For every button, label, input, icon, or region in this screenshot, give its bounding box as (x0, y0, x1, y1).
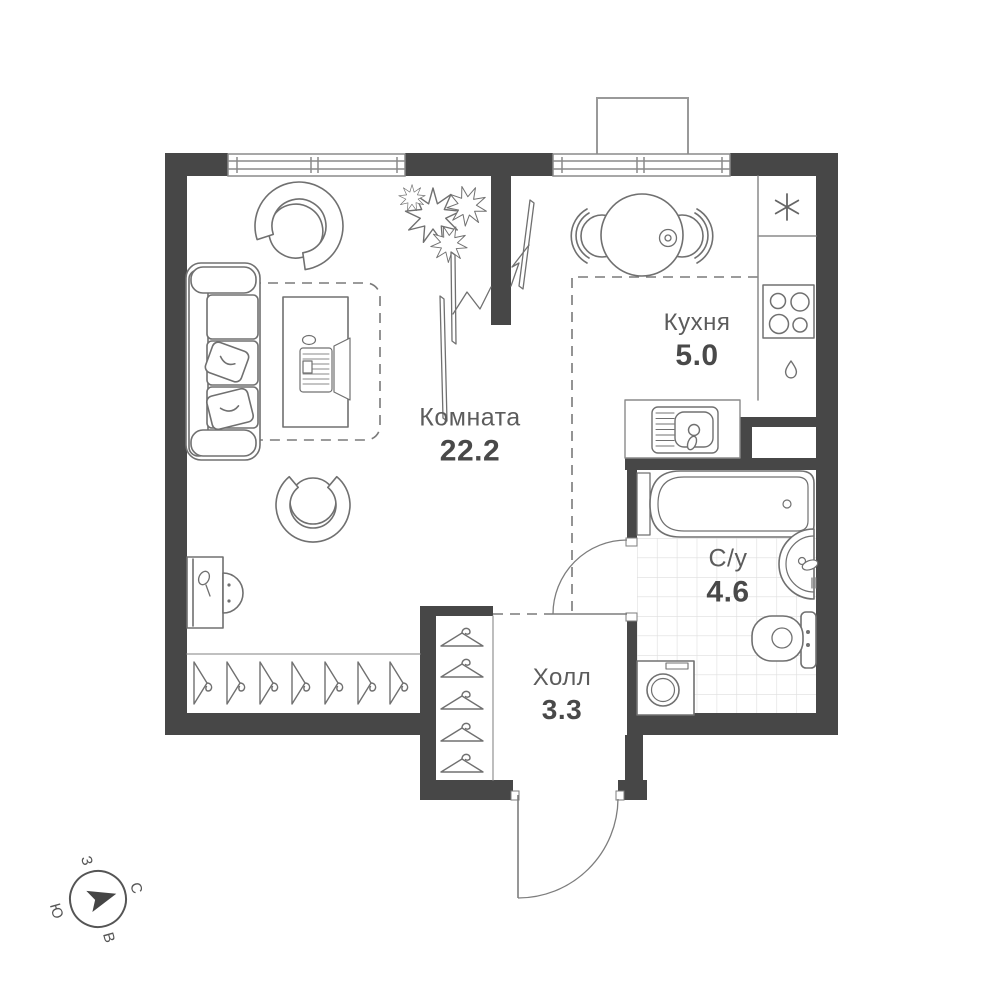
compass-south: Ю (46, 901, 67, 920)
wall-duct-left (740, 417, 752, 458)
desk-chair (276, 477, 350, 542)
room-label-living: Комната 22.2 (419, 403, 520, 468)
room-name: Кухня (664, 309, 731, 337)
compass: С В Ю З (36, 843, 157, 957)
wall-closet-left (420, 606, 436, 800)
entry-door (511, 791, 624, 898)
room-label-kitchen: Кухня 5.0 (664, 309, 731, 373)
water-droplet-icon (786, 361, 797, 378)
compass-west: З (77, 854, 96, 867)
wall-room-kitchen (491, 176, 511, 325)
room-name: Холл (533, 664, 592, 692)
closet-hangers (441, 628, 483, 772)
window-room (228, 154, 405, 176)
plant (394, 179, 494, 266)
room-area: 4.6 (706, 575, 749, 610)
kitchen-sink (625, 400, 740, 458)
bathroom-door (553, 538, 637, 621)
desk (283, 297, 350, 427)
wall-closet-top (426, 606, 493, 616)
balcony (597, 98, 688, 155)
room-area: 3.3 (533, 694, 592, 726)
stool (223, 573, 243, 613)
compass-arrow (86, 883, 119, 912)
room-name: С/у (706, 544, 749, 573)
dressing-table (187, 557, 243, 628)
room-area: 5.0 (664, 339, 731, 374)
wardrobe (187, 654, 420, 704)
window-kitchen (553, 154, 730, 176)
hall-closet (441, 616, 493, 780)
sofa (186, 263, 260, 460)
bathtub (637, 471, 814, 537)
wardrobe-hangers (194, 662, 408, 704)
armchair (244, 165, 360, 278)
room-name: Комната (419, 403, 520, 432)
wall-bath-top (625, 458, 816, 470)
dining-set (571, 194, 713, 276)
floor-plan: С В Ю З (0, 0, 1000, 1000)
fridge-symbol-icon (776, 194, 799, 220)
room-label-bathroom: С/у 4.6 (706, 544, 749, 609)
compass-north: С (126, 881, 145, 896)
washing-machine (637, 661, 694, 715)
floor-plan-page: С В Ю З Комната 22.2 Кухня 5.0 С/у 4.6 Х… (0, 0, 1000, 1000)
laptop-screen (334, 338, 350, 400)
compass-east: В (99, 930, 118, 944)
room-label-hall: Холл 3.3 (533, 664, 592, 726)
mouse (303, 336, 316, 345)
room-area: 22.2 (419, 434, 520, 469)
stove (763, 285, 814, 338)
